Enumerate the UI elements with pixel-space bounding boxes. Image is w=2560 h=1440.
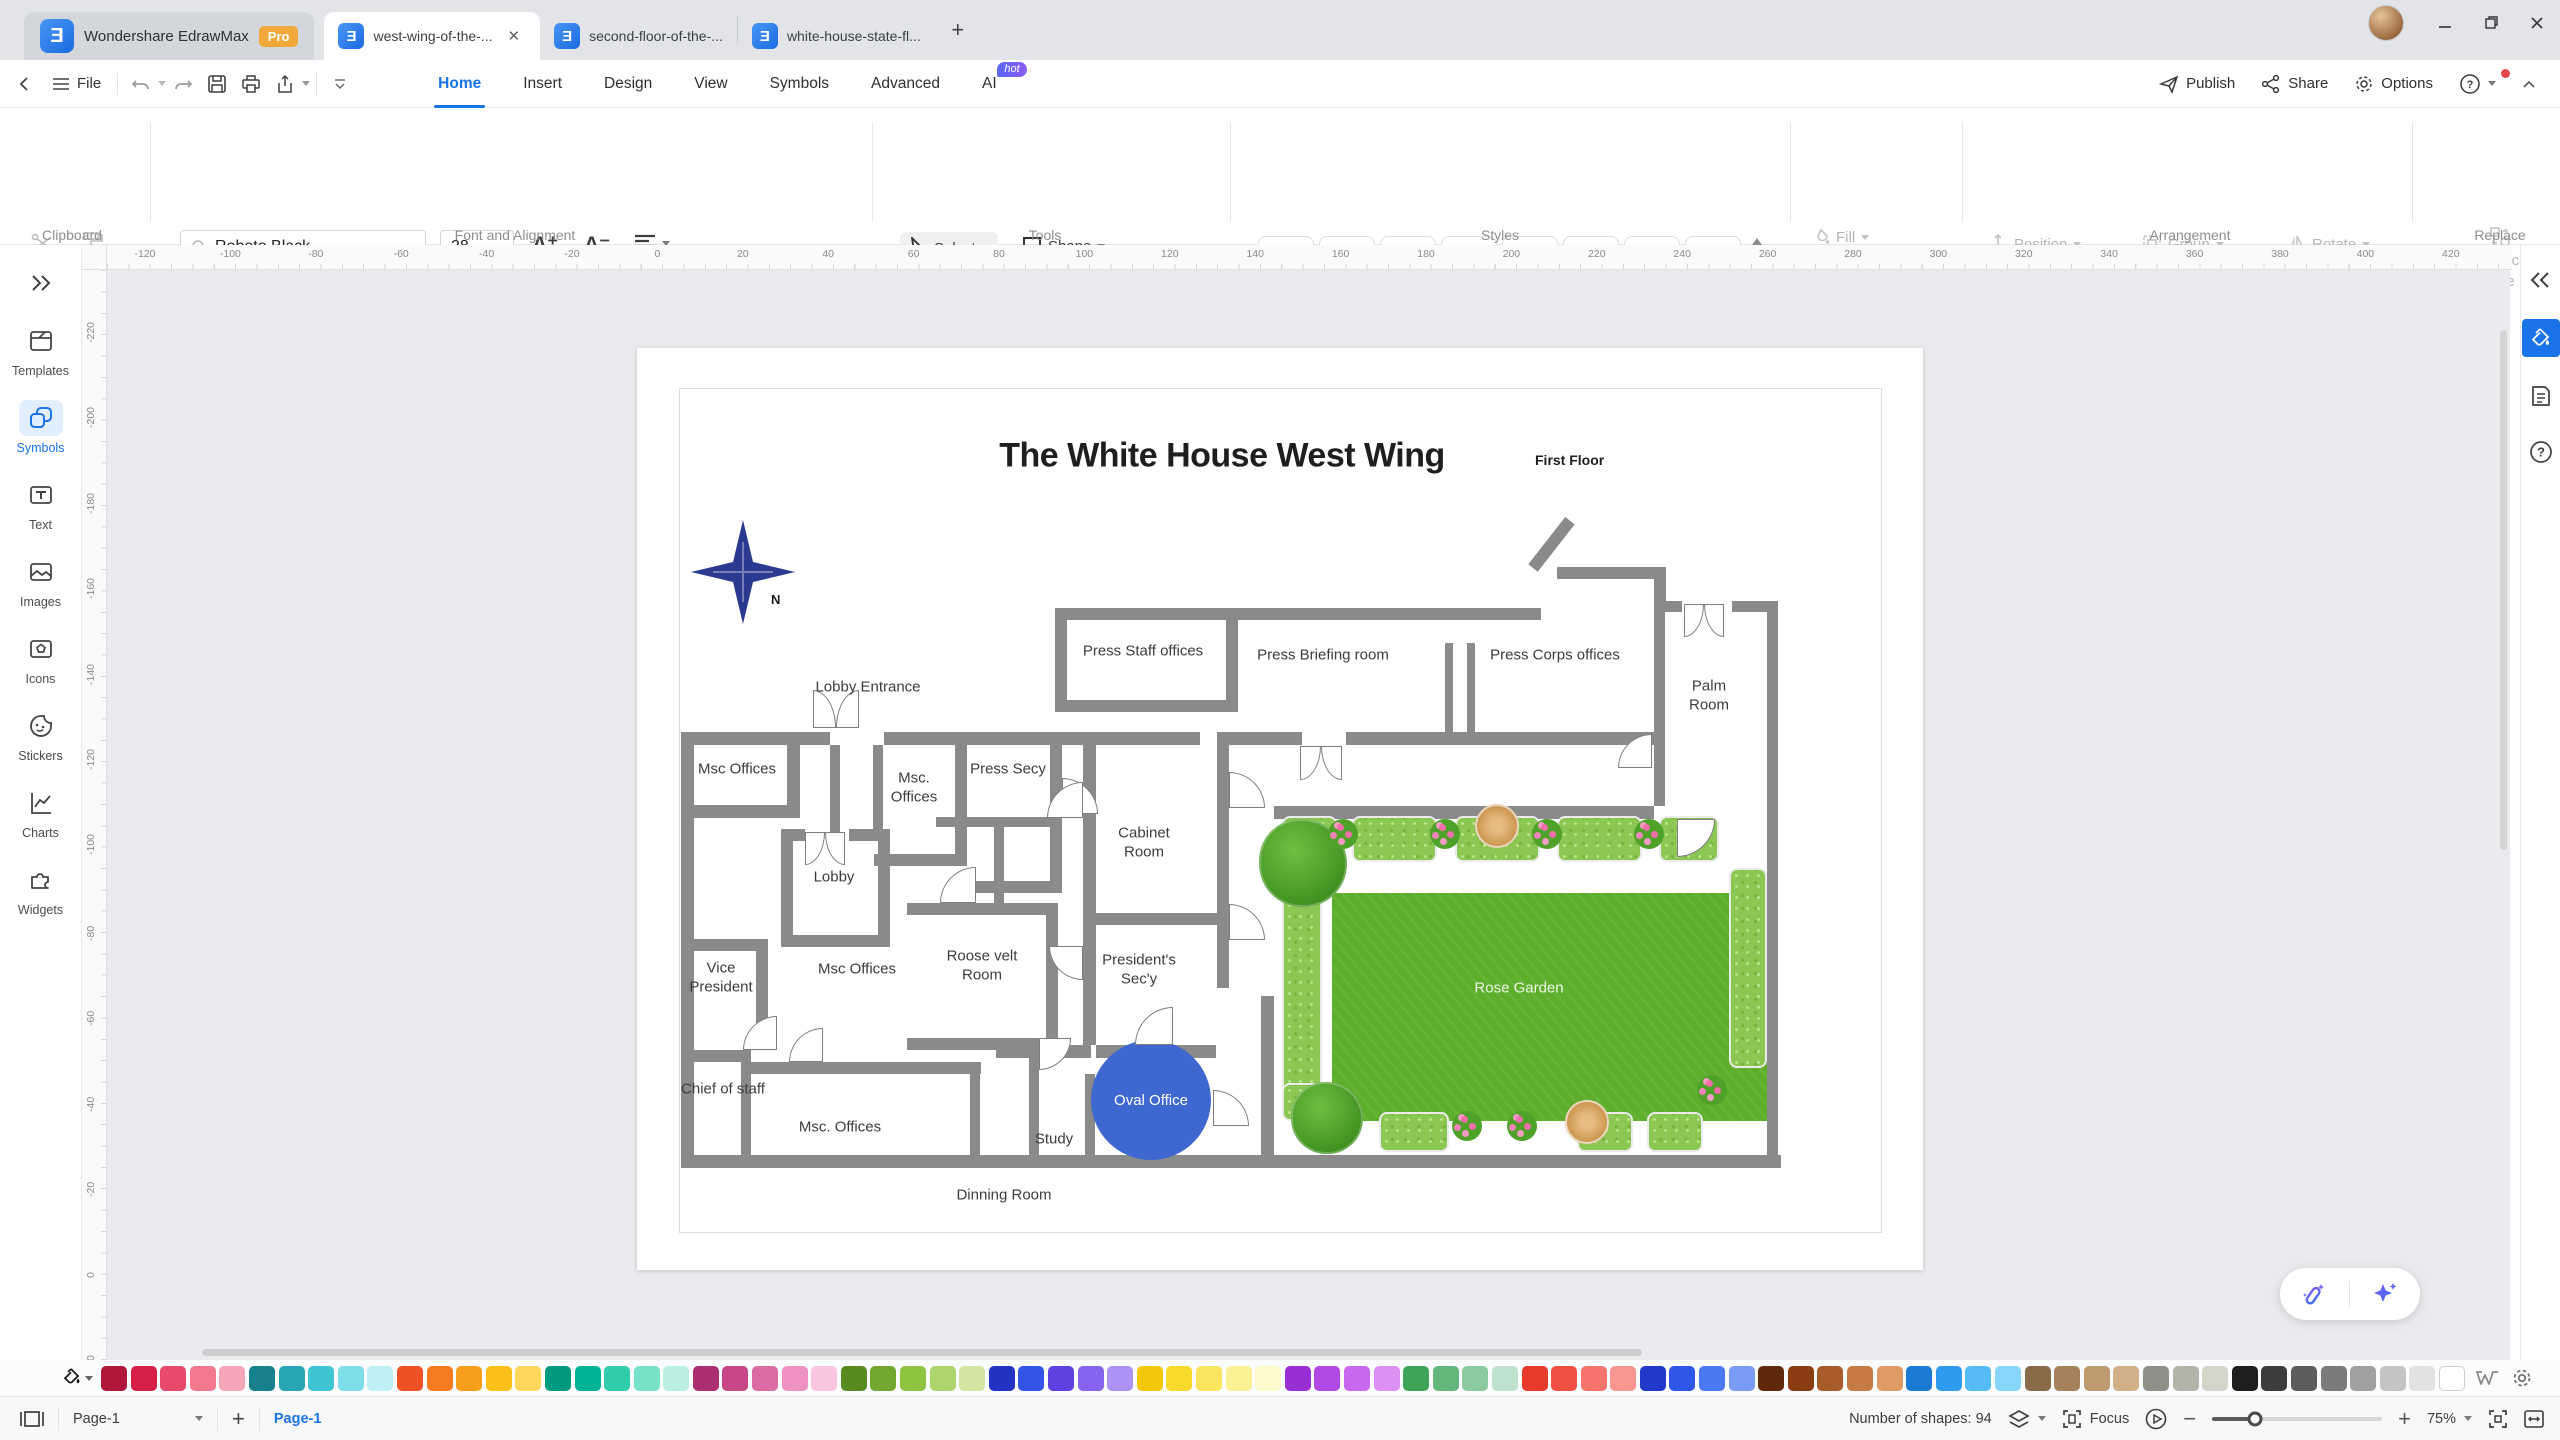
ruler-label: -180 bbox=[85, 500, 97, 514]
ruler-label: 420 bbox=[2442, 248, 2460, 260]
wall[interactable] bbox=[907, 903, 1058, 915]
wall[interactable] bbox=[830, 745, 840, 833]
color-swatch[interactable] bbox=[900, 1366, 926, 1391]
sidebar-item-charts[interactable]: Charts bbox=[0, 785, 81, 840]
garden-flowers[interactable] bbox=[1532, 819, 1562, 849]
focus-button[interactable]: Focus bbox=[2062, 1409, 2130, 1429]
app-name: Wondershare EdrawMax bbox=[84, 28, 249, 45]
color-swatch[interactable] bbox=[841, 1366, 867, 1391]
wall[interactable] bbox=[751, 1062, 981, 1074]
symbols-icon bbox=[19, 400, 63, 436]
room-label[interactable]: Msc. Offices bbox=[770, 1119, 910, 1138]
options-button[interactable]: Options bbox=[2344, 74, 2443, 94]
color-swatch[interactable] bbox=[2232, 1366, 2258, 1391]
divider bbox=[2412, 122, 2413, 222]
color-swatch[interactable] bbox=[249, 1366, 275, 1391]
wall[interactable] bbox=[994, 827, 1004, 903]
document-tab-active[interactable]: Ǝ west-wing-of-the-... ✕ bbox=[324, 12, 540, 60]
color-swatch[interactable] bbox=[604, 1366, 630, 1391]
ruler-corner bbox=[82, 245, 107, 270]
collapse-toolbar-icon[interactable] bbox=[323, 67, 357, 101]
document-tab-title: second-floor-of-the-... bbox=[589, 28, 723, 44]
color-swatch[interactable] bbox=[1433, 1366, 1459, 1391]
widgets-icon bbox=[19, 862, 63, 898]
document-tab[interactable]: Ǝ white-house-state-fl... bbox=[738, 12, 935, 60]
color-swatch[interactable] bbox=[2113, 1366, 2139, 1391]
color-swatch[interactable] bbox=[1936, 1366, 1962, 1391]
ruler-label: 120 bbox=[1161, 248, 1179, 260]
share-button[interactable]: Share bbox=[2251, 74, 2338, 94]
color-swatch[interactable] bbox=[2202, 1366, 2228, 1391]
ruler-label: 0 bbox=[85, 1268, 97, 1282]
document-tab[interactable]: Ǝ second-floor-of-the-... bbox=[540, 12, 737, 60]
garden-flowers[interactable] bbox=[1328, 819, 1358, 849]
templates-icon bbox=[19, 323, 63, 359]
color-swatch[interactable] bbox=[693, 1366, 719, 1391]
document-icon: Ǝ bbox=[338, 23, 364, 49]
document-page[interactable]: The White House West Wing First Floor N … bbox=[637, 348, 1923, 1270]
sidebar-expand-button[interactable] bbox=[0, 265, 81, 301]
color-swatch[interactable] bbox=[663, 1366, 689, 1391]
add-page-button[interactable]: + bbox=[232, 1406, 245, 1432]
group-caption-replace: Replace bbox=[2474, 227, 2525, 243]
color-swatch[interactable] bbox=[2291, 1366, 2317, 1391]
sidebar-item-templates[interactable]: Templates bbox=[0, 323, 81, 378]
color-swatch[interactable] bbox=[2409, 1366, 2435, 1391]
pro-badge: Pro bbox=[259, 26, 299, 47]
wall[interactable] bbox=[873, 745, 883, 833]
sidebar-item-images[interactable]: Images bbox=[0, 554, 81, 609]
ruler-label: -220 bbox=[85, 329, 97, 343]
page-view-icon[interactable] bbox=[20, 1410, 44, 1428]
door-arc[interactable] bbox=[789, 1028, 823, 1062]
ruler-label: -160 bbox=[85, 585, 97, 599]
fill-panel-button[interactable] bbox=[2522, 319, 2560, 357]
door-arc[interactable] bbox=[1229, 904, 1265, 940]
ruler-label: 340 bbox=[2100, 248, 2118, 260]
fit-page-button[interactable] bbox=[2488, 1409, 2508, 1429]
color-swatch[interactable] bbox=[160, 1366, 186, 1391]
tab-home[interactable]: Home bbox=[434, 60, 485, 108]
ruler-label: 320 bbox=[2015, 248, 2033, 260]
tab-symbols[interactable]: Symbols bbox=[766, 60, 833, 108]
ruler-label: 400 bbox=[2357, 248, 2375, 260]
presentation-play-button[interactable] bbox=[2145, 1408, 2167, 1430]
help-button[interactable]: ? bbox=[2449, 73, 2506, 95]
garden-flowers[interactable] bbox=[1697, 1075, 1727, 1105]
sidebar-item-symbols[interactable]: Symbols bbox=[0, 400, 81, 455]
garden-hedge[interactable] bbox=[1557, 816, 1642, 862]
wall[interactable] bbox=[884, 732, 1200, 745]
room-label[interactable]: Cabinet Room bbox=[1109, 824, 1179, 862]
color-swatch[interactable] bbox=[1462, 1366, 1488, 1391]
sidebar-item-widgets[interactable]: Widgets bbox=[0, 862, 81, 917]
print-icon[interactable] bbox=[234, 67, 268, 101]
color-swatch[interactable] bbox=[1255, 1366, 1281, 1391]
color-swatch[interactable] bbox=[545, 1366, 571, 1391]
sidebar-item-icons[interactable]: Icons bbox=[0, 631, 81, 686]
color-swatch[interactable] bbox=[2350, 1366, 2376, 1391]
ruler-label: 380 bbox=[2271, 248, 2289, 260]
color-swatch[interactable] bbox=[1610, 1366, 1636, 1391]
color-swatch[interactable] bbox=[1965, 1366, 1991, 1391]
room-label[interactable]: Lobby bbox=[794, 869, 874, 888]
ruler-label: -120 bbox=[85, 756, 97, 770]
room-label[interactable]: Study bbox=[1019, 1131, 1089, 1150]
color-swatch[interactable] bbox=[1048, 1366, 1074, 1391]
color-swatch[interactable] bbox=[1314, 1366, 1340, 1391]
save-icon[interactable] bbox=[200, 67, 234, 101]
color-swatch[interactable] bbox=[1196, 1366, 1222, 1391]
color-picker-icon[interactable] bbox=[2475, 1368, 2499, 1388]
color-swatch[interactable] bbox=[1166, 1366, 1192, 1391]
back-icon[interactable] bbox=[8, 67, 42, 101]
room-label[interactable]: Press Briefing room bbox=[1213, 647, 1433, 666]
color-swatch[interactable] bbox=[782, 1366, 808, 1391]
wall[interactable] bbox=[787, 745, 800, 818]
group-caption-tools: Tools bbox=[1029, 227, 1062, 243]
ruler-label: 360 bbox=[2186, 248, 2204, 260]
color-palette-bar bbox=[0, 1360, 2560, 1396]
double-door[interactable] bbox=[1300, 746, 1342, 780]
color-swatch[interactable] bbox=[1906, 1366, 1932, 1391]
document-icon: Ǝ bbox=[752, 23, 778, 49]
color-swatch[interactable] bbox=[101, 1366, 127, 1391]
ruler-label: -80 bbox=[85, 927, 97, 941]
page-select-dropdown[interactable]: Page-1 bbox=[73, 1411, 203, 1427]
wall[interactable] bbox=[970, 1062, 980, 1155]
close-button[interactable] bbox=[2514, 0, 2560, 46]
garden-hedge[interactable] bbox=[1352, 816, 1437, 862]
color-swatch[interactable] bbox=[367, 1366, 393, 1391]
color-swatch[interactable] bbox=[1522, 1366, 1548, 1391]
color-swatch[interactable] bbox=[1581, 1366, 1607, 1391]
user-avatar[interactable] bbox=[2368, 5, 2404, 41]
divider bbox=[117, 73, 118, 95]
color-swatch[interactable] bbox=[131, 1366, 157, 1391]
room-label[interactable]: Press Corps offices bbox=[1445, 647, 1665, 666]
divider bbox=[217, 1407, 218, 1431]
room-label[interactable]: Dinning Room bbox=[949, 1187, 1059, 1206]
garden-tree-tan[interactable] bbox=[1475, 804, 1519, 848]
export-caret[interactable] bbox=[302, 81, 310, 86]
color-swatch[interactable] bbox=[1995, 1366, 2021, 1391]
wall[interactable] bbox=[741, 1062, 751, 1155]
color-swatch[interactable] bbox=[219, 1366, 245, 1391]
color-swatch[interactable] bbox=[2054, 1366, 2080, 1391]
ruler-label: -120 bbox=[134, 248, 155, 260]
color-swatch[interactable] bbox=[575, 1366, 601, 1391]
undo-caret[interactable] bbox=[158, 81, 166, 86]
room-label[interactable]: Chief of staff bbox=[681, 1081, 766, 1100]
page-tab[interactable]: Page-1 bbox=[274, 1411, 322, 1427]
ruler-label: -40 bbox=[479, 248, 494, 260]
app-home-tab[interactable]: Ǝ Wondershare EdrawMax Pro bbox=[24, 12, 314, 60]
zoom-slider[interactable] bbox=[2212, 1417, 2382, 1421]
wall[interactable] bbox=[781, 829, 793, 947]
color-swatch[interactable] bbox=[1640, 1366, 1666, 1391]
sidebar-item-text[interactable]: Text bbox=[0, 477, 81, 532]
undo-icon[interactable] bbox=[124, 67, 158, 101]
color-swatch[interactable] bbox=[2439, 1366, 2465, 1391]
color-swatch[interactable] bbox=[338, 1366, 364, 1391]
garden-tree-tan[interactable] bbox=[1565, 1100, 1609, 1144]
zoom-slider-thumb[interactable] bbox=[2247, 1411, 2262, 1426]
minimize-button[interactable] bbox=[2422, 0, 2468, 46]
main-nav: Home Insert Design View Symbols Advanced… bbox=[417, 60, 1017, 108]
sidebar-item-stickers[interactable]: Stickers bbox=[0, 708, 81, 763]
color-swatch[interactable] bbox=[1403, 1366, 1429, 1391]
palette-settings-gear-icon[interactable] bbox=[2511, 1367, 2533, 1389]
ruler-label: 60 bbox=[908, 248, 920, 260]
room-label[interactable]: Msc Offices bbox=[687, 761, 787, 780]
color-swatch[interactable] bbox=[2143, 1366, 2169, 1391]
color-swatch[interactable] bbox=[959, 1366, 985, 1391]
color-swatch[interactable] bbox=[1877, 1366, 1903, 1391]
styles-up-icon[interactable] bbox=[1752, 238, 1762, 245]
room-label[interactable]: President's Sec'y bbox=[1089, 951, 1189, 989]
wall[interactable] bbox=[1083, 745, 1096, 925]
color-swatch[interactable] bbox=[456, 1366, 482, 1391]
color-swatch[interactable] bbox=[634, 1366, 660, 1391]
help-panel-button[interactable]: ? bbox=[2524, 435, 2558, 469]
color-swatch[interactable] bbox=[1107, 1366, 1133, 1391]
color-swatch[interactable] bbox=[1729, 1366, 1755, 1391]
wall[interactable] bbox=[1654, 612, 1665, 806]
shapes-count: Number of shapes: 94 bbox=[1849, 1411, 1992, 1427]
wall[interactable] bbox=[1654, 601, 1682, 612]
garden-flowers[interactable] bbox=[1430, 819, 1460, 849]
wall[interactable] bbox=[1346, 732, 1654, 745]
wall[interactable] bbox=[681, 732, 830, 745]
room-label[interactable]: Msc Offices bbox=[797, 961, 917, 980]
fit-width-button[interactable] bbox=[2524, 1409, 2544, 1429]
wall[interactable] bbox=[1557, 567, 1654, 579]
zoom-out-button[interactable]: − bbox=[2183, 1406, 2196, 1432]
double-door[interactable] bbox=[805, 832, 845, 865]
door-arc[interactable] bbox=[743, 1016, 777, 1050]
color-swatch[interactable] bbox=[1137, 1366, 1163, 1391]
wall[interactable] bbox=[874, 854, 967, 866]
close-tab-icon[interactable]: ✕ bbox=[502, 25, 527, 47]
wall[interactable] bbox=[681, 1050, 751, 1062]
wall[interactable] bbox=[1055, 700, 1238, 712]
ruler-label: -100 bbox=[85, 841, 97, 855]
color-swatch[interactable] bbox=[308, 1366, 334, 1391]
room-label[interactable]: Msc. Offices bbox=[884, 769, 944, 807]
color-swatch[interactable] bbox=[1669, 1366, 1695, 1391]
wall[interactable] bbox=[781, 935, 890, 947]
room-label[interactable]: Lobby Entrance bbox=[788, 679, 948, 698]
tab-insert[interactable]: Insert bbox=[519, 60, 566, 108]
color-swatch[interactable] bbox=[2025, 1366, 2051, 1391]
group-caption-font: Font and Alignment bbox=[455, 227, 576, 243]
ai-sparkle-icon[interactable] bbox=[2371, 1280, 2399, 1308]
wall[interactable] bbox=[1055, 608, 1238, 620]
wall[interactable] bbox=[849, 829, 890, 841]
color-swatch[interactable] bbox=[930, 1366, 956, 1391]
garden-hedge[interactable] bbox=[1729, 868, 1767, 1068]
ruler-label: 240 bbox=[1673, 248, 1691, 260]
color-swatch[interactable] bbox=[486, 1366, 512, 1391]
status-bar: Page-1 + Page-1 Number of shapes: 94 Foc… bbox=[0, 1396, 2560, 1440]
color-swatch[interactable] bbox=[1788, 1366, 1814, 1391]
oval-office-shape[interactable]: Oval Office bbox=[1091, 1040, 1211, 1160]
ruler-label: 0 bbox=[654, 248, 660, 260]
color-swatch[interactable] bbox=[1344, 1366, 1370, 1391]
color-swatch[interactable] bbox=[1699, 1366, 1725, 1391]
wall[interactable] bbox=[1238, 608, 1541, 620]
color-swatch[interactable] bbox=[427, 1366, 453, 1391]
wall[interactable] bbox=[1083, 913, 1229, 925]
vertical-scrollbar[interactable] bbox=[2500, 330, 2507, 850]
color-swatch[interactable] bbox=[989, 1366, 1015, 1391]
ruler-label: -60 bbox=[85, 1012, 97, 1026]
stickers-icon bbox=[19, 708, 63, 744]
images-icon bbox=[19, 554, 63, 590]
panel-expand-button[interactable] bbox=[2524, 263, 2558, 297]
color-swatches bbox=[101, 1366, 2465, 1391]
door-arc[interactable] bbox=[940, 867, 976, 903]
door-arc[interactable] bbox=[1213, 1090, 1249, 1126]
door-arc[interactable] bbox=[1229, 772, 1265, 808]
fill-color-icon bbox=[62, 1367, 82, 1389]
room-label[interactable]: Roose velt Room bbox=[932, 947, 1032, 985]
color-swatch[interactable] bbox=[190, 1366, 216, 1391]
color-swatch[interactable] bbox=[1285, 1366, 1311, 1391]
tab-view[interactable]: View bbox=[690, 60, 731, 108]
wall[interactable] bbox=[681, 1155, 1781, 1168]
color-swatch[interactable] bbox=[1551, 1366, 1577, 1391]
tab-design[interactable]: Design bbox=[600, 60, 656, 108]
garden-flowers[interactable] bbox=[1452, 1111, 1482, 1141]
wall[interactable] bbox=[1046, 903, 1058, 1050]
divider bbox=[872, 122, 873, 222]
window-controls bbox=[2368, 0, 2560, 46]
color-swatch[interactable] bbox=[397, 1366, 423, 1391]
menu-bar: File Home Insert Design View Symbols Adv… bbox=[0, 60, 2560, 108]
collapse-ribbon-icon[interactable] bbox=[2512, 67, 2546, 101]
chevrons-right-icon bbox=[19, 265, 63, 301]
door-arc[interactable] bbox=[1039, 1038, 1071, 1070]
color-swatch[interactable] bbox=[811, 1366, 837, 1391]
garden-tree[interactable] bbox=[1291, 1082, 1363, 1154]
color-swatch[interactable] bbox=[2084, 1366, 2110, 1391]
tab-ai[interactable]: AIhot bbox=[978, 60, 1001, 108]
ruler-label: 140 bbox=[1246, 248, 1264, 260]
garden-hedge[interactable] bbox=[1647, 1112, 1703, 1152]
wall[interactable] bbox=[1767, 601, 1778, 1161]
color-swatch[interactable] bbox=[2380, 1366, 2406, 1391]
layers-button[interactable] bbox=[2008, 1409, 2046, 1429]
double-door[interactable] bbox=[1684, 604, 1724, 637]
new-tab-button[interactable]: + bbox=[941, 13, 975, 47]
color-swatch[interactable] bbox=[1492, 1366, 1518, 1391]
document-tab-title: west-wing-of-the-... bbox=[373, 28, 492, 44]
ruler-label: 300 bbox=[1930, 248, 1948, 260]
right-rail: ? bbox=[2520, 245, 2560, 1360]
maximize-button[interactable] bbox=[2468, 0, 2514, 46]
wall[interactable] bbox=[1217, 745, 1229, 988]
color-swatch[interactable] bbox=[722, 1366, 748, 1391]
document-icon: Ǝ bbox=[554, 23, 580, 49]
color-swatch[interactable] bbox=[1758, 1366, 1784, 1391]
room-label[interactable]: Press Secy bbox=[958, 761, 1058, 780]
ruler-label: 180 bbox=[1417, 248, 1435, 260]
garden-hedge[interactable] bbox=[1379, 1112, 1449, 1152]
redo-icon[interactable] bbox=[166, 67, 200, 101]
ruler-label: -20 bbox=[564, 248, 579, 260]
document-tab-title: white-house-state-fl... bbox=[787, 28, 921, 44]
ruler-label: -60 bbox=[394, 248, 409, 260]
wall[interactable] bbox=[936, 817, 1062, 827]
svg-text:?: ? bbox=[2537, 445, 2545, 460]
room-label[interactable]: Palm Room bbox=[1674, 677, 1744, 715]
wall[interactable] bbox=[681, 805, 800, 818]
tab-advanced[interactable]: Advanced bbox=[867, 60, 944, 108]
divider bbox=[2349, 1281, 2350, 1307]
drawing-canvas[interactable]: The White House West Wing First Floor N … bbox=[82, 270, 2510, 1360]
wall[interactable] bbox=[681, 939, 768, 951]
ruler-label: 100 bbox=[1076, 248, 1094, 260]
room-label[interactable]: Vice President bbox=[679, 959, 764, 997]
publish-button[interactable]: Publish bbox=[2149, 74, 2245, 94]
divider bbox=[1962, 122, 1963, 222]
color-swatch[interactable] bbox=[1018, 1366, 1044, 1391]
color-swatch[interactable] bbox=[279, 1366, 305, 1391]
magic-wand-icon[interactable] bbox=[2301, 1281, 2327, 1307]
hot-badge: hot bbox=[997, 62, 1026, 77]
edrawmax-logo-icon: Ǝ bbox=[40, 19, 74, 53]
color-swatch[interactable] bbox=[2261, 1366, 2287, 1391]
file-menu[interactable]: File bbox=[42, 75, 111, 92]
horizontal-scrollbar[interactable] bbox=[202, 1349, 1642, 1356]
garden-flowers[interactable] bbox=[1634, 819, 1664, 849]
ruler-label: 200 bbox=[1503, 248, 1521, 260]
color-swatch[interactable] bbox=[1226, 1366, 1252, 1391]
notes-panel-button[interactable] bbox=[2524, 379, 2558, 413]
color-swatch[interactable] bbox=[1847, 1366, 1873, 1391]
ruler-label: -200 bbox=[85, 414, 97, 428]
door-arc[interactable] bbox=[1135, 1007, 1173, 1045]
zoom-level-dropdown[interactable]: 75% bbox=[2427, 1411, 2472, 1427]
color-swatch[interactable] bbox=[870, 1366, 896, 1391]
color-swatch[interactable] bbox=[752, 1366, 778, 1391]
color-swatch[interactable] bbox=[1374, 1366, 1400, 1391]
wall[interactable] bbox=[1217, 732, 1302, 745]
color-swatch[interactable] bbox=[1078, 1366, 1104, 1391]
garden-flowers[interactable] bbox=[1507, 1111, 1537, 1141]
wall[interactable] bbox=[1261, 996, 1274, 1168]
color-swatch[interactable] bbox=[2173, 1366, 2199, 1391]
wall[interactable] bbox=[781, 829, 805, 841]
room-label-rose-garden[interactable]: Rose Garden bbox=[1474, 980, 1563, 997]
menu-right: Publish Share Options ? bbox=[2149, 67, 2546, 101]
wall-diagonal[interactable] bbox=[1528, 517, 1574, 572]
ai-assistant-pill bbox=[2280, 1268, 2420, 1320]
fill-button[interactable]: Fill bbox=[1812, 228, 1869, 246]
wall[interactable] bbox=[878, 829, 890, 947]
ruler-label: 40 bbox=[822, 248, 834, 260]
export-icon[interactable] bbox=[268, 67, 302, 101]
fill-tool-button[interactable] bbox=[62, 1367, 93, 1389]
ruler-label: -100 bbox=[220, 248, 241, 260]
color-swatch[interactable] bbox=[2321, 1366, 2347, 1391]
color-swatch[interactable] bbox=[515, 1366, 541, 1391]
color-swatch[interactable] bbox=[1817, 1366, 1843, 1391]
divider bbox=[150, 122, 151, 222]
zoom-in-button[interactable]: + bbox=[2398, 1406, 2411, 1432]
